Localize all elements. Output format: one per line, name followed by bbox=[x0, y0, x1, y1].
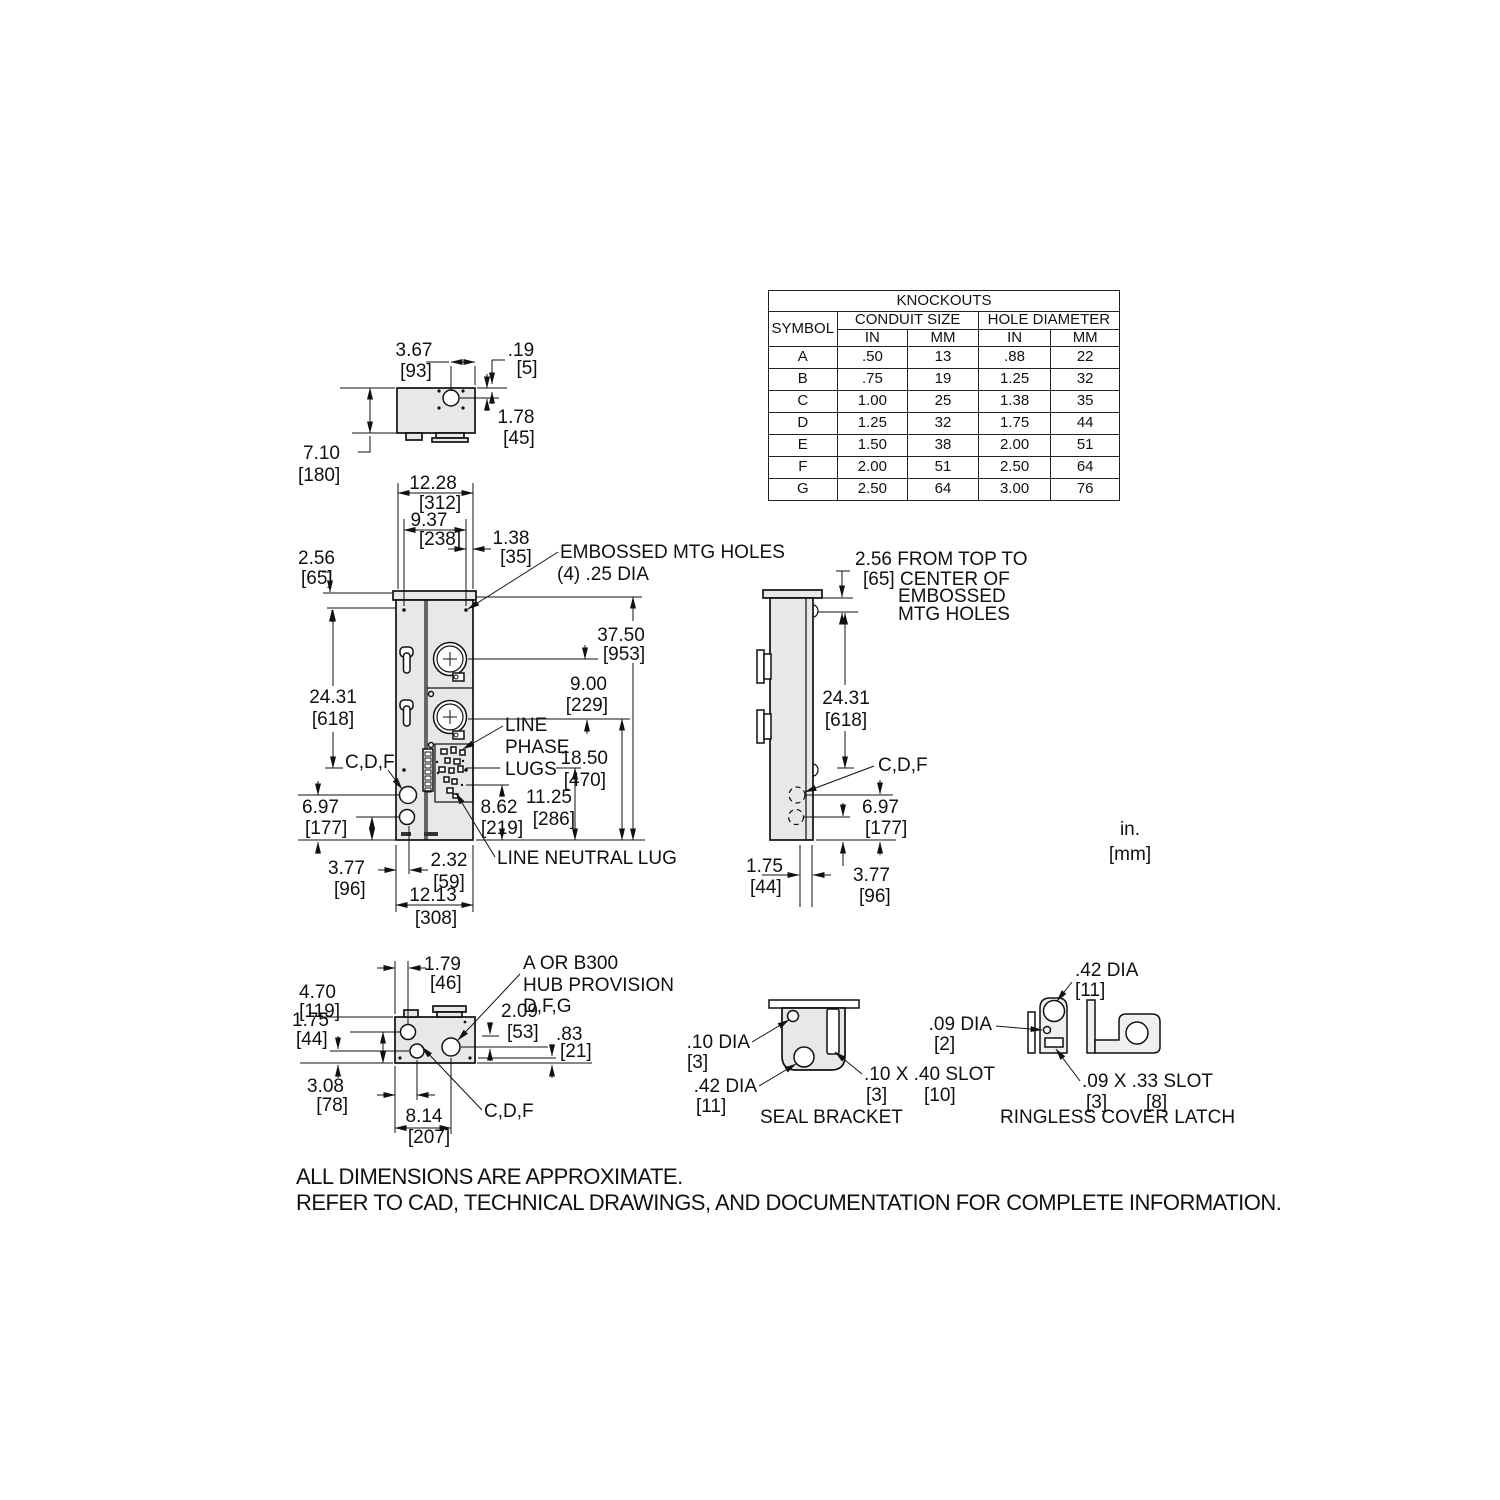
dim-b-1-75: 1.75 bbox=[292, 1010, 329, 1031]
technical-drawing-page: 3.67 [93] .19 [5] 1.78 [45] 7.10 [180] bbox=[0, 0, 1500, 1500]
knockout-row-c: C1.00251.3835 bbox=[769, 391, 1120, 413]
col-hole-mm: MM bbox=[1051, 329, 1120, 347]
dim-9-37: 9.37 bbox=[411, 510, 448, 531]
dim-11-25-mm: [286] bbox=[533, 809, 575, 830]
label-hub-provision-2: HUB PROVISION bbox=[523, 975, 674, 996]
side-note-4: MTG HOLES bbox=[898, 604, 1010, 625]
side-view: 2.56 FROM TOP TO [65] CENTER OF EMBOSSED… bbox=[746, 549, 1027, 907]
label-line-neutral-lug: LINE NEUTRAL LUG bbox=[497, 848, 677, 869]
col-symbol: SYMBOL bbox=[769, 312, 838, 347]
col-hole-diameter: HOLE DIAMETER bbox=[978, 312, 1119, 330]
label-cdf-side: C,D,F bbox=[878, 755, 928, 776]
dim-18-50: 18.50 bbox=[560, 748, 608, 769]
dim-12-13-mm: [308] bbox=[415, 908, 457, 929]
units-note: in. [mm] bbox=[1109, 819, 1151, 865]
knockout-row-a: A.5013.8822 bbox=[769, 347, 1120, 369]
knockout-row-b: B.75191.2532 bbox=[769, 369, 1120, 391]
dim-latch-42-dia-mm: [11] bbox=[1075, 980, 1105, 1001]
dim-3-67-mm: [93] bbox=[400, 361, 432, 382]
footer-note-line2: REFER TO CAD, TECHNICAL DRAWINGS, AND DO… bbox=[296, 1190, 1281, 1216]
dim-8-14-mm: [207] bbox=[408, 1127, 450, 1148]
dim-latch-slot: .09 X .33 SLOT bbox=[1082, 1071, 1213, 1092]
dim-2-09: 2.09 bbox=[501, 1001, 538, 1022]
dim-7-10: 7.10 bbox=[303, 443, 340, 464]
dim-1-78: 1.78 bbox=[498, 407, 535, 428]
dim-0-83-mm: [21] bbox=[560, 1041, 592, 1062]
dim-2-32: 2.32 bbox=[431, 850, 468, 871]
dim-side-3-77-mm: [96] bbox=[859, 886, 891, 907]
dim-7-10-mm: [180] bbox=[298, 465, 340, 486]
label-embossed-holes-1: EMBOSSED MTG HOLES bbox=[560, 542, 785, 563]
label-cdf-bottom: C,D,F bbox=[484, 1101, 534, 1122]
dim-2-09-mm: [53] bbox=[507, 1022, 539, 1043]
dim-side-24-31-mm: [618] bbox=[825, 710, 867, 731]
footer-note-line1: ALL DIMENSIONS ARE APPROXIMATE. bbox=[296, 1164, 1281, 1190]
dim-11-25: 11.25 bbox=[526, 787, 572, 808]
dim-seal-10-dia-mm: [3] bbox=[687, 1052, 708, 1073]
caption-ringless-cover-latch: RINGLESS COVER LATCH bbox=[1000, 1107, 1235, 1128]
label-line-phase-lugs-1: LINE bbox=[505, 715, 547, 736]
col-hole-in: IN bbox=[978, 329, 1051, 347]
knockouts-table-title: KNOCKOUTS bbox=[769, 291, 1120, 312]
knockout-row-e: E1.50382.0051 bbox=[769, 435, 1120, 457]
dim-37-50-mm: [953] bbox=[603, 644, 645, 665]
dim-1-78-mm: [45] bbox=[503, 428, 535, 449]
dim-b-1-75-mm: [44] bbox=[296, 1029, 328, 1050]
col-conduit-size: CONDUIT SIZE bbox=[837, 312, 978, 330]
knockout-row-f: F2.00512.5064 bbox=[769, 457, 1120, 479]
dim-6-97: 6.97 bbox=[302, 797, 339, 818]
dim-seal-slot-mm1: [3] bbox=[866, 1085, 887, 1106]
label-embossed-holes-2: (4) .25 DIA bbox=[557, 564, 649, 585]
units-in: in. bbox=[1120, 819, 1140, 840]
col-conduit-in: IN bbox=[837, 329, 908, 347]
dim-3-67: 3.67 bbox=[396, 340, 433, 361]
dim-4-70: 4.70 bbox=[299, 982, 336, 1003]
dim-24-31-mm: [618] bbox=[312, 709, 354, 730]
dim-1-79: 1.79 bbox=[424, 954, 461, 975]
dim-latch-09-dia-mm: [2] bbox=[934, 1034, 955, 1055]
dim-3-77: 3.77 bbox=[328, 858, 365, 879]
dim-24-31: 24.31 bbox=[309, 687, 357, 708]
drawing-canvas: 3.67 [93] .19 [5] 1.78 [45] 7.10 [180] bbox=[0, 0, 1500, 1500]
dim-side-3-77: 3.77 bbox=[853, 865, 890, 886]
dim-9-37-mm: [238] bbox=[419, 529, 461, 550]
dim-seal-10-dia: .10 DIA bbox=[687, 1032, 751, 1053]
dim-12-28: 12.28 bbox=[409, 473, 457, 494]
dim-9-00-mm: [229] bbox=[566, 695, 608, 716]
dim-8-62: 8.62 bbox=[481, 797, 518, 818]
label-line-phase-lugs-3: LUGS bbox=[505, 759, 557, 780]
dim-12-13: 12.13 bbox=[409, 885, 457, 906]
units-mm: [mm] bbox=[1109, 844, 1151, 865]
bottom-view: 1.79 [46] 4.70 [119] 1.75 [44] A OR B300… bbox=[292, 953, 674, 1148]
dim-0-19-mm: [5] bbox=[516, 358, 537, 379]
dim-side-24-31: 24.31 bbox=[822, 688, 870, 709]
dim-3-77-mm: [96] bbox=[334, 879, 366, 900]
dim-8-14: 8.14 bbox=[406, 1106, 443, 1127]
dim-8-62-mm: [219] bbox=[481, 818, 523, 839]
dim-latch-09-dia: .09 DIA bbox=[929, 1014, 993, 1035]
dim-seal-slot-mm2: [10] bbox=[924, 1085, 956, 1106]
col-conduit-mm: MM bbox=[908, 329, 979, 347]
footer-note: ALL DIMENSIONS ARE APPROXIMATE. REFER TO… bbox=[296, 1164, 1281, 1216]
dim-1-79-mm: [46] bbox=[430, 973, 462, 994]
dim-latch-42-dia: .42 DIA bbox=[1075, 960, 1139, 981]
dim-9-00: 9.00 bbox=[570, 674, 607, 695]
knockouts-table: KNOCKOUTS SYMBOL CONDUIT SIZE HOLE DIAME… bbox=[768, 290, 1120, 501]
dim-side-6-97-mm: [177] bbox=[865, 818, 907, 839]
caption-seal-bracket: SEAL BRACKET bbox=[760, 1107, 903, 1128]
side-note-1: 2.56 FROM TOP TO bbox=[855, 549, 1027, 570]
dim-6-97-mm: [177] bbox=[305, 818, 347, 839]
knockout-row-d: D1.25321.7544 bbox=[769, 413, 1120, 435]
dim-2-56: 2.56 bbox=[298, 548, 335, 569]
ringless-cover-latch: .42 DIA [11] .09 DIA [2] .09 X .33 SLOT … bbox=[929, 960, 1235, 1128]
dim-3-08: 3.08 bbox=[307, 1076, 344, 1097]
dim-2-56-mm: [65] bbox=[301, 568, 333, 589]
dim-side-1-75-mm: [44] bbox=[750, 877, 782, 898]
dim-side-1-75: 1.75 bbox=[746, 856, 783, 877]
dim-3-08-mm: [78] bbox=[316, 1095, 348, 1116]
front-view: 12.28 [312] 9.37 [238] 1.38 [35] 2.56 [6… bbox=[298, 473, 785, 929]
label-cdf-front: C,D,F bbox=[345, 752, 395, 773]
dim-seal-42-dia-mm: [11] bbox=[696, 1096, 726, 1117]
dim-seal-slot: .10 X .40 SLOT bbox=[864, 1064, 995, 1085]
dim-seal-42-dia: .42 DIA bbox=[694, 1076, 758, 1097]
dim-side-6-97: 6.97 bbox=[862, 797, 899, 818]
top-view: 3.67 [93] .19 [5] 1.78 [45] 7.10 [180] bbox=[298, 340, 538, 486]
dim-1-38: 1.38 bbox=[493, 528, 530, 549]
label-hub-provision-1: A OR B300 bbox=[523, 953, 618, 974]
dim-1-38-mm: [35] bbox=[500, 547, 532, 568]
dim-37-50: 37.50 bbox=[597, 625, 645, 646]
knockout-row-g: G2.50643.0076 bbox=[769, 479, 1120, 501]
